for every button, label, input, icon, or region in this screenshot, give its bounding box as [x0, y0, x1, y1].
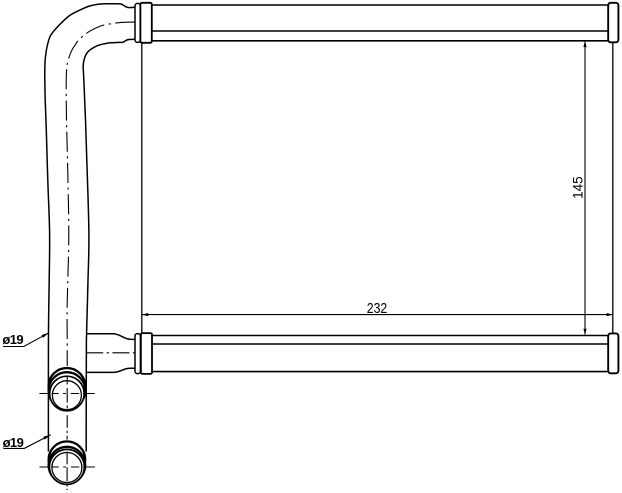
svg-text:ø19: ø19 [2, 332, 23, 347]
svg-text:232: 232 [367, 300, 388, 317]
svg-text:145: 145 [570, 176, 585, 199]
